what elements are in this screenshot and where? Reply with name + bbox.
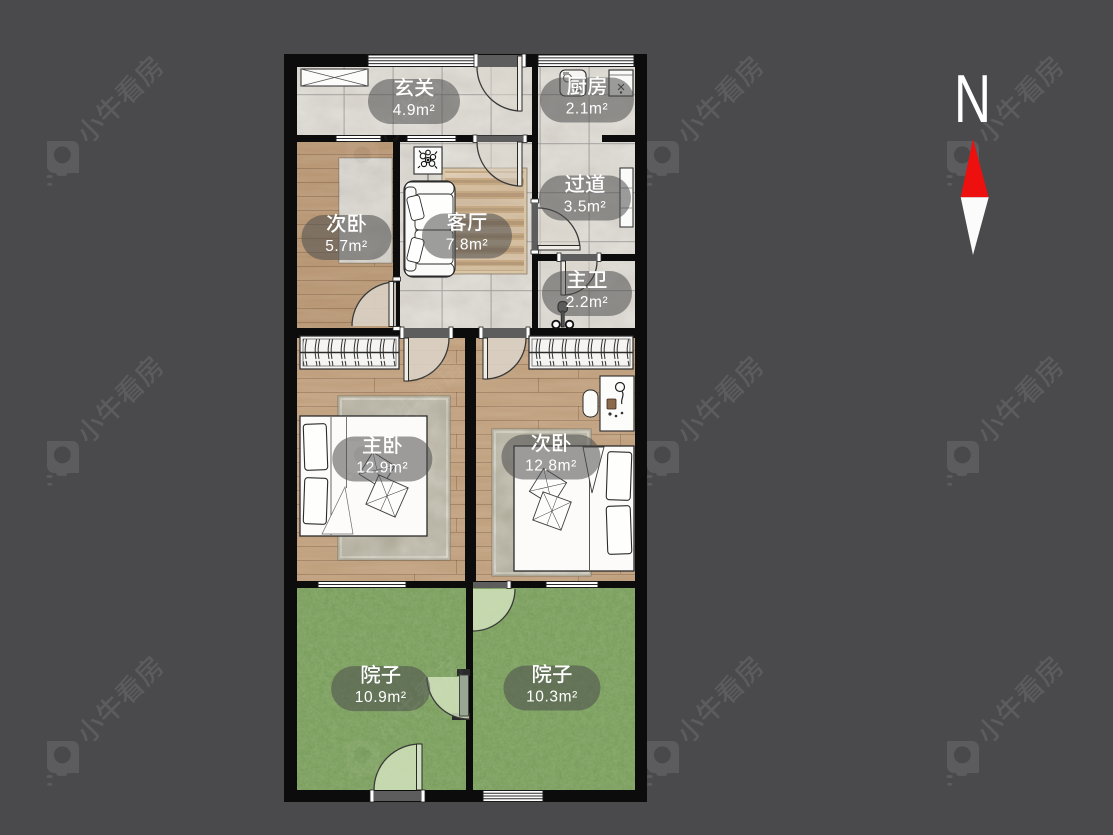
svg-text:N: N: [954, 61, 991, 137]
svg-text:5.7m²: 5.7m²: [325, 238, 368, 255]
svg-text:10.9m²: 10.9m²: [355, 689, 407, 706]
svg-text:3.5m²: 3.5m²: [564, 199, 607, 216]
svg-text:2.1m²: 2.1m²: [566, 101, 609, 118]
svg-text:12.8m²: 12.8m²: [525, 458, 577, 475]
svg-text:10.3m²: 10.3m²: [526, 689, 578, 706]
svg-text:7.8m²: 7.8m²: [446, 237, 489, 254]
svg-text:2.2m²: 2.2m²: [566, 294, 609, 311]
